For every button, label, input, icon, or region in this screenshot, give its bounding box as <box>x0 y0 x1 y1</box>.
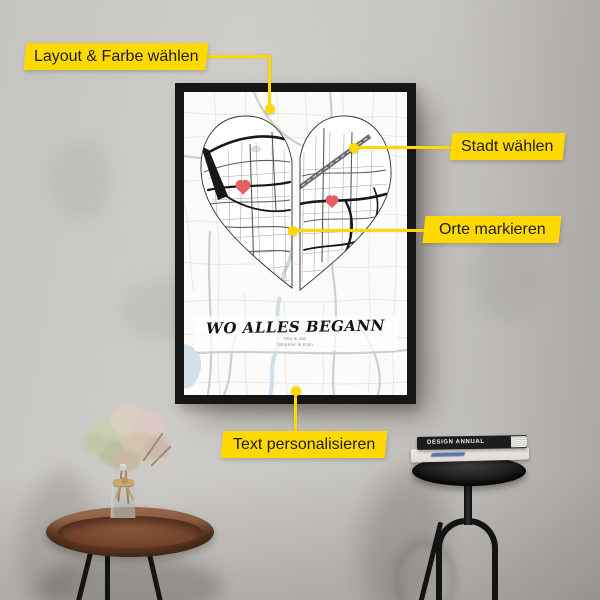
stool-legs-arch <box>436 518 498 600</box>
callout-stadt-label: Stadt wählen <box>461 138 554 156</box>
connector-layout-h <box>205 55 271 58</box>
connector-text-v <box>294 391 297 432</box>
book-top: DESIGN ANNUAL <box>417 435 527 450</box>
poster-caption: WO ALLES BEGANN Mia & Jan Münster & Köln <box>194 316 397 351</box>
book-top-spine-text: DESIGN ANNUAL <box>427 439 485 446</box>
book-pages-edge <box>511 436 527 447</box>
flower-sprig-bud <box>158 458 166 466</box>
callout-layout-farbe-label: Layout & Farbe wählen <box>34 48 199 66</box>
callout-layout-farbe[interactable]: Layout & Farbe wählen <box>24 43 209 70</box>
poster-frame: WO ALLES BEGANN Mia & Jan Münster & Köln <box>175 83 416 404</box>
callout-text-pers[interactable]: Text personalisieren <box>221 431 388 458</box>
map-point-center-icon <box>288 226 298 236</box>
table-tray-surface <box>58 516 202 548</box>
callout-orte-label: Orte markieren <box>439 221 546 239</box>
table-leg <box>105 552 110 600</box>
twine-knot <box>121 477 128 484</box>
map-point-bottom-icon <box>291 386 301 396</box>
dried-flower-bouquet <box>82 402 172 480</box>
wall-stain <box>50 140 110 220</box>
map-point-right-icon <box>349 143 359 153</box>
connector-stadt <box>354 146 452 149</box>
callout-stadt[interactable]: Stadt wählen <box>450 133 566 160</box>
connector-orte <box>293 229 425 232</box>
callout-orte[interactable]: Orte markieren <box>423 216 562 243</box>
map-point-top-icon <box>265 104 275 114</box>
scene: WO ALLES BEGANN Mia & Jan Münster & Köln… <box>0 0 600 600</box>
connector-layout-v <box>268 55 271 109</box>
map-poster: WO ALLES BEGANN Mia & Jan Münster & Köln <box>184 92 407 395</box>
callout-text-pers-label: Text personalisieren <box>233 436 375 454</box>
poster-subtitle-cities: Münster & Köln <box>194 342 397 348</box>
book-bottom-spine-mark <box>430 452 465 457</box>
poster-title: WO ALLES BEGANN <box>194 316 397 338</box>
